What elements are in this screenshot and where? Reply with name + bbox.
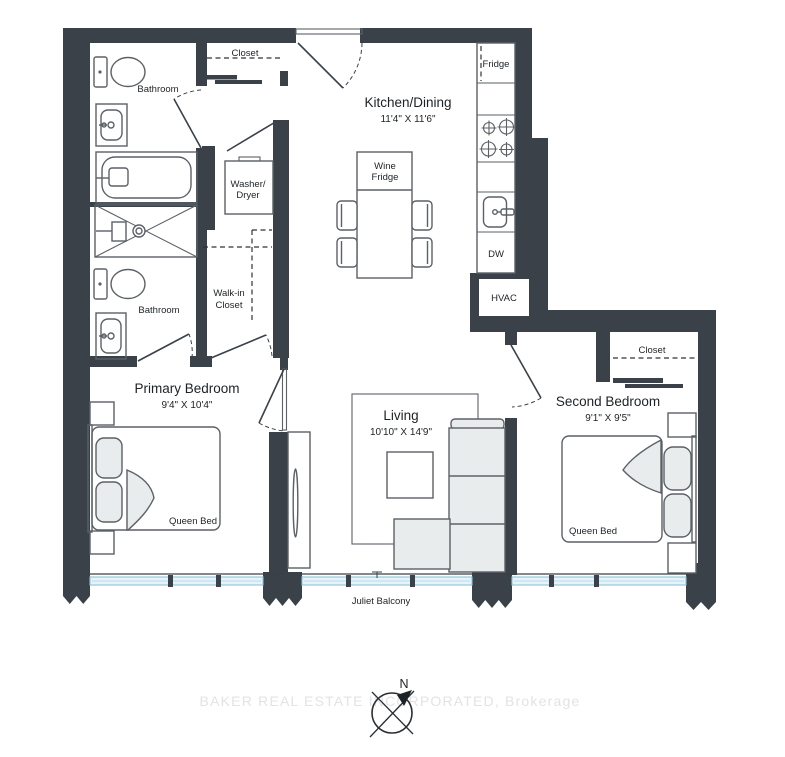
closet-top-sliding-door — [202, 75, 237, 80]
entry-door-leaf — [298, 43, 343, 88]
kitchen-dims: 11'4" X 11'6" — [380, 114, 435, 125]
second-bed-label: Queen Bed — [569, 526, 617, 537]
window-mullion — [410, 575, 415, 587]
hvac-label: HVAC — [491, 293, 517, 304]
living-title: Living — [383, 408, 418, 423]
dishwasher-label: DW — [488, 249, 504, 260]
floorplan-drawing: Bathroom Closet Kitchen/Dining 11'4" X 1… — [0, 0, 785, 757]
pillow — [96, 438, 122, 478]
window-mullion — [346, 575, 351, 587]
kitchen-counter — [477, 43, 515, 273]
second-bedroom-furniture — [562, 413, 696, 573]
washer-dryer-label: Dryer — [236, 190, 259, 201]
nightstand — [90, 402, 114, 425]
walkin-closet-label: Closet — [216, 300, 243, 311]
sofa-chaise — [394, 519, 450, 569]
primary-title: Primary Bedroom — [134, 381, 239, 396]
primary-door-leaf — [259, 369, 284, 423]
bathroom-lower-door-swing — [189, 334, 192, 358]
fridge-label: Fridge — [483, 59, 510, 70]
wine-fridge-label: Fridge — [372, 172, 399, 183]
entry-door-swing — [343, 43, 362, 88]
bathroom-lower-label: Bathroom — [138, 305, 179, 316]
sofa — [449, 428, 505, 572]
nightstand — [668, 543, 696, 573]
kitchen-title: Kitchen/Dining — [364, 95, 451, 110]
bathroom-top-door-leaf — [174, 99, 201, 148]
second-bedroom-door-leaf — [511, 345, 541, 398]
entry-door-header — [296, 29, 362, 34]
primary-door-swing — [259, 423, 285, 431]
closet-second-sliding-door — [613, 378, 663, 383]
nightstand — [668, 413, 696, 437]
primary-bed-label: Queen Bed — [169, 516, 217, 527]
second-title: Second Bedroom — [556, 394, 660, 409]
shower-drain — [133, 225, 145, 237]
tv-icon — [293, 469, 298, 537]
windows — [90, 572, 698, 587]
juliet-balcony-label: Juliet Balcony — [352, 596, 411, 607]
bathroom-lower-door-leaf — [138, 334, 189, 361]
washer-dryer-label: Washer/ — [230, 179, 265, 190]
wine-fridge-label: Wine — [374, 161, 396, 172]
living-dims: 10'10" X 14'9" — [370, 427, 433, 438]
closet-top-sliding-door — [215, 80, 262, 84]
toilet-icon — [111, 270, 145, 299]
window-mullion — [168, 575, 173, 587]
floorplan-page: Bathroom Closet Kitchen/Dining 11'4" X 1… — [0, 0, 785, 757]
kitchen-sink-icon — [484, 197, 515, 227]
nightstand — [90, 531, 114, 554]
second-bedroom-door-swing — [512, 398, 541, 407]
coffee-table — [387, 452, 433, 498]
pillow — [664, 494, 691, 537]
headboard — [692, 436, 696, 542]
laundry-door-leaf — [227, 121, 277, 151]
window-mullion — [549, 575, 554, 587]
stove-burners-icon — [480, 118, 516, 158]
shower-control — [112, 222, 126, 241]
closet-top-label: Closet — [232, 48, 259, 59]
pillow — [664, 447, 691, 490]
compass-north-label: N — [399, 677, 408, 691]
walkin-door-swing — [266, 335, 272, 356]
toilet-icon — [111, 58, 145, 87]
walkin-closet-label: Walk-in — [213, 288, 244, 299]
pillow — [96, 482, 122, 522]
kitchen-fixtures — [337, 43, 516, 278]
window-mullion — [216, 575, 221, 587]
bathroom-top-fixtures — [94, 57, 197, 203]
bathroom-lower-fixtures — [94, 205, 197, 359]
window-mullion — [594, 575, 599, 587]
closet-second-sliding-door — [625, 384, 683, 388]
walkin-door-leaf — [211, 335, 266, 358]
primary-door-frame — [283, 369, 287, 430]
primary-bedroom-furniture — [88, 402, 220, 554]
brokerage-watermark: BAKER REAL ESTATE INCORPORATED, Brokerag… — [200, 693, 581, 709]
primary-dims: 9'4" X 10'4" — [162, 400, 213, 411]
second-dims: 9'1" X 9'5" — [585, 413, 631, 424]
tv-console — [288, 432, 310, 568]
closet-second-label: Closet — [639, 345, 666, 356]
bathroom-top-label: Bathroom — [137, 84, 178, 95]
